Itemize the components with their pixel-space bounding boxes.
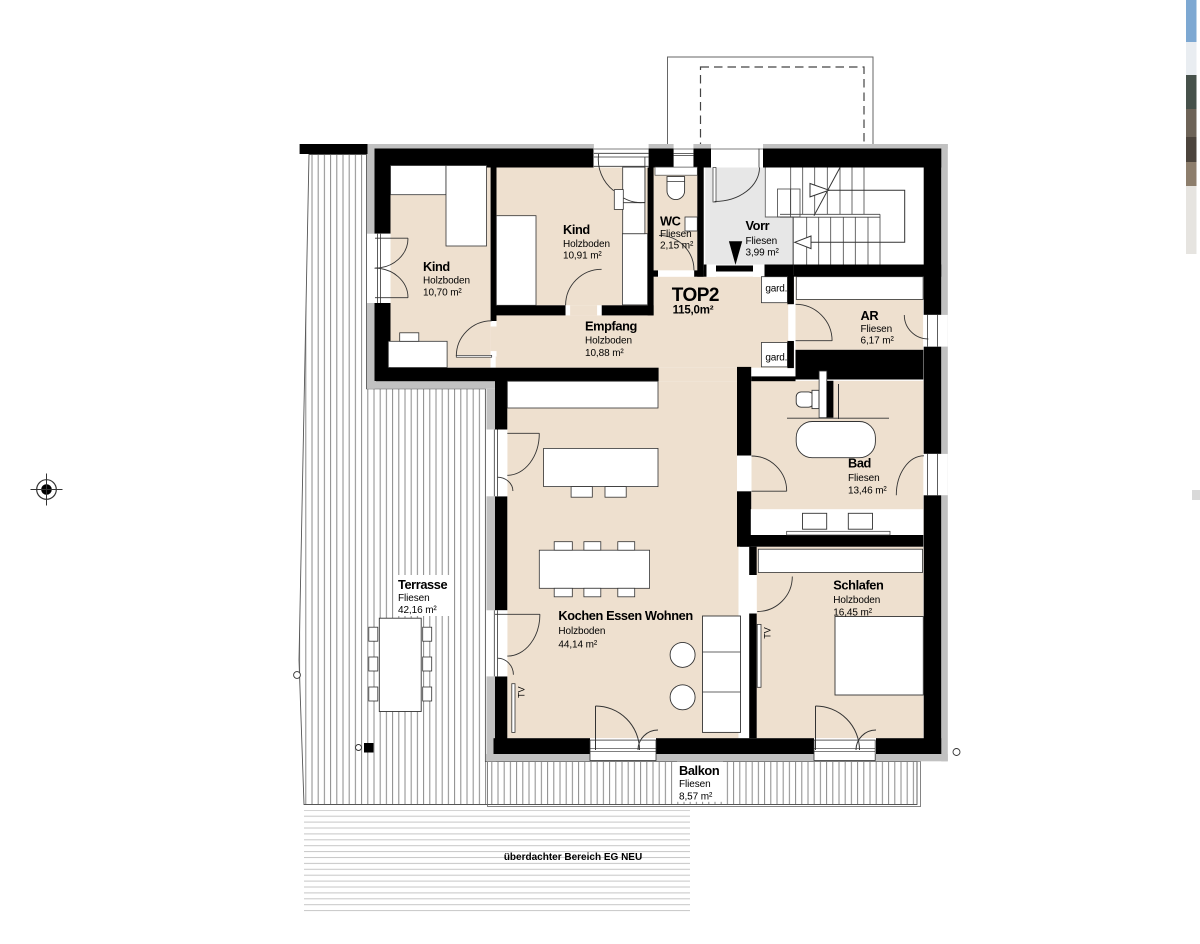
svg-text:10,70 m²: 10,70 m² (423, 288, 462, 299)
svg-text:Fliesen: Fliesen (398, 593, 430, 604)
svg-text:Balkon: Balkon (679, 763, 720, 778)
svg-text:Holzboden: Holzboden (563, 239, 610, 250)
svg-text:AR: AR (861, 308, 879, 323)
svg-text:2,15 m²: 2,15 m² (660, 241, 694, 252)
svg-text:Terrasse: Terrasse (398, 577, 447, 592)
svg-text:TV: TV (517, 686, 527, 698)
svg-text:10,91 m²: 10,91 m² (563, 251, 602, 262)
svg-text:13,46 m²: 13,46 m² (848, 486, 887, 497)
svg-text:gard.: gard. (765, 353, 787, 364)
svg-text:8,57 m²: 8,57 m² (679, 791, 713, 802)
svg-text:Kind: Kind (563, 222, 590, 237)
svg-text:115,0m²: 115,0m² (673, 305, 714, 317)
svg-text:10,88 m²: 10,88 m² (585, 348, 624, 359)
svg-text:Holzboden: Holzboden (833, 595, 880, 606)
svg-text:TV: TV (763, 627, 773, 639)
svg-text:Empfang: Empfang (585, 319, 637, 334)
svg-text:Fliesen: Fliesen (660, 229, 692, 240)
svg-text:gard.: gard. (765, 284, 787, 295)
svg-text:Kochen Essen Wohnen: Kochen Essen Wohnen (558, 608, 693, 623)
svg-text:Holzboden: Holzboden (558, 626, 605, 637)
svg-text:42,16 m²: 42,16 m² (398, 605, 437, 616)
svg-text:TOP2: TOP2 (672, 285, 719, 306)
svg-text:3,99 m²: 3,99 m² (746, 248, 780, 259)
svg-text:Holzboden: Holzboden (585, 335, 632, 346)
svg-text:Bad: Bad (848, 456, 871, 471)
svg-text:Fliesen: Fliesen (679, 779, 711, 790)
svg-text:Fliesen: Fliesen (848, 473, 880, 484)
svg-text:Fliesen: Fliesen (861, 324, 893, 335)
svg-text:Kind: Kind (423, 259, 450, 274)
svg-text:44,14 m²: 44,14 m² (558, 640, 597, 651)
svg-text:16,45 m²: 16,45 m² (833, 607, 872, 618)
svg-text:Schlafen: Schlafen (833, 578, 884, 593)
svg-text:Fliesen: Fliesen (746, 236, 778, 247)
svg-text:Vorr: Vorr (746, 218, 770, 233)
svg-text:WC: WC (660, 213, 681, 228)
svg-text:6,17 m²: 6,17 m² (861, 336, 895, 347)
svg-text:Holzboden: Holzboden (423, 275, 470, 286)
svg-text:überdachter Bereich EG NEU: überdachter Bereich EG NEU (504, 852, 642, 863)
